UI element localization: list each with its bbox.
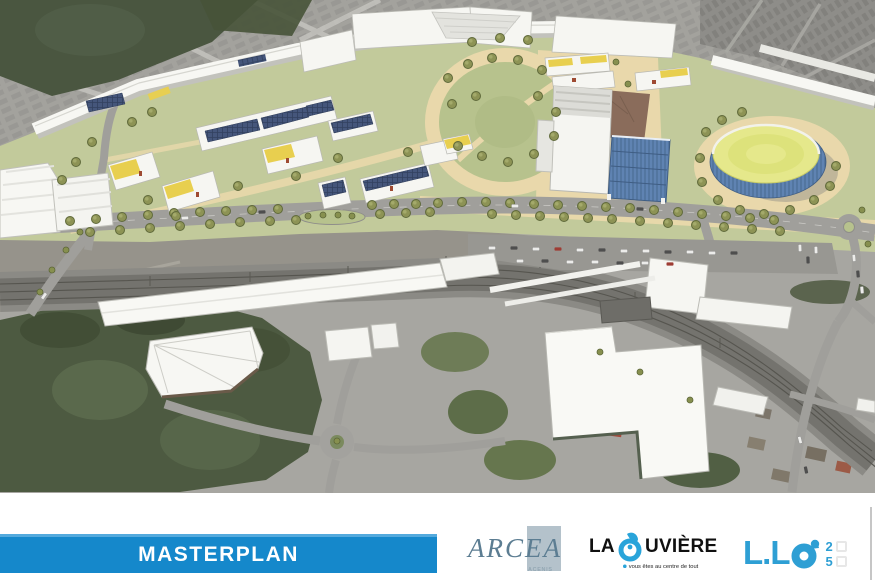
masterplan-banner: MASTERPLAN [0,534,437,573]
la-louviere-o-glyph [617,532,643,562]
ghost-square-icon [836,541,847,552]
masterplan-slide: MASTERPLAN ARCEA ACENIS LA UVIÈRE [0,0,875,584]
ghost-square-icon [836,556,847,567]
la-louviere-wordmark: LA UVIÈRE [589,532,728,562]
llo25-logo: L.L 2 5 [743,538,847,569]
llo25-o-glyph [790,538,821,569]
masterplan-aerial-render [0,0,875,493]
la-louviere-suffix: UVIÈRE [645,536,718,558]
arcea-logo-text: ARCEA [468,533,562,564]
la-louviere-tagline: vous êtes au centre de tout [623,563,698,569]
roundabout-east [836,214,862,240]
llo25-digit-2: 2 [825,540,832,553]
footer: MASTERPLAN ARCEA ACENIS LA UVIÈRE [0,493,875,584]
banner-title: MASTERPLAN [138,543,299,567]
blue-canopy-building [607,136,670,204]
aerial-svg [0,0,875,493]
arcea-logo: ARCEA ACENIS [468,526,588,578]
llo25-digit-5: 5 [825,555,832,568]
right-edge-line [870,507,872,580]
la-louviere-prefix: LA [589,536,615,558]
tagline-dot-icon [623,564,627,568]
llo25-digits: 2 5 [825,539,846,569]
la-louviere-logo: LA UVIÈRE vous êtes au centre de tout [589,532,728,572]
arcea-logo-subtext: ACENIS [528,566,553,572]
llo25-wordmark: L.L [743,538,789,568]
roundabout-south [320,425,354,459]
